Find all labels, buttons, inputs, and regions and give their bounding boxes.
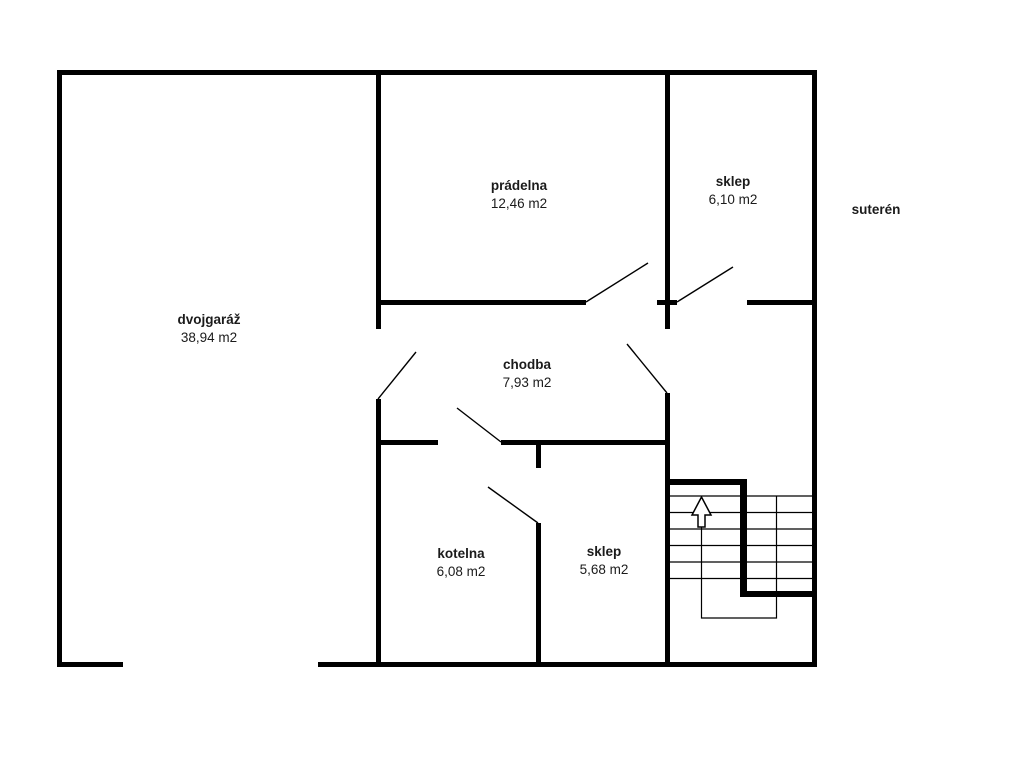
stairs-up-arrow-icon bbox=[692, 497, 711, 527]
wall bbox=[57, 70, 817, 75]
room-area: 6,10 m2 bbox=[709, 191, 758, 209]
room-area: 12,46 m2 bbox=[491, 195, 547, 213]
wall bbox=[376, 399, 381, 667]
room-name: dvojgaráž bbox=[177, 311, 240, 329]
room-area: 6,08 m2 bbox=[437, 563, 486, 581]
wall bbox=[536, 523, 541, 667]
room-area: 7,93 m2 bbox=[503, 374, 552, 392]
wall bbox=[318, 662, 817, 667]
room-label-kotelna: kotelna 6,08 m2 bbox=[437, 545, 486, 581]
wall bbox=[376, 70, 381, 329]
room-area: 5,68 m2 bbox=[580, 561, 629, 579]
floor-plan: dvojgaráž 38,94 m2 prádelna 12,46 m2 skl… bbox=[0, 0, 1024, 768]
room-name: prádelna bbox=[491, 177, 547, 195]
wall bbox=[670, 479, 744, 485]
door-swing bbox=[586, 263, 648, 302]
wall bbox=[501, 440, 670, 445]
room-label-dvojgaraz: dvojgaráž 38,94 m2 bbox=[177, 311, 240, 347]
room-label-sklep-bottom: sklep 5,68 m2 bbox=[580, 543, 629, 579]
room-name: kotelna bbox=[437, 545, 486, 563]
wall bbox=[747, 300, 812, 305]
door-swing bbox=[488, 487, 538, 523]
wall bbox=[665, 70, 670, 329]
stair-walk-line bbox=[702, 496, 777, 618]
room-label-sklep-top: sklep 6,10 m2 bbox=[709, 173, 758, 209]
door-swing bbox=[457, 408, 501, 442]
floor-level-label: suterén bbox=[852, 202, 901, 217]
door-swing bbox=[378, 352, 416, 399]
wall bbox=[740, 479, 747, 597]
room-label-pradelna: prádelna 12,46 m2 bbox=[491, 177, 547, 213]
room-name: sklep bbox=[580, 543, 629, 561]
room-name: sklep bbox=[709, 173, 758, 191]
door-swing bbox=[627, 344, 667, 393]
room-area: 38,94 m2 bbox=[177, 329, 240, 347]
door-swing bbox=[677, 267, 733, 302]
wall bbox=[378, 440, 438, 445]
wall bbox=[657, 300, 677, 305]
wall bbox=[57, 662, 123, 667]
wall bbox=[665, 393, 670, 667]
wall bbox=[536, 440, 541, 468]
room-label-chodba: chodba 7,93 m2 bbox=[503, 356, 552, 392]
wall bbox=[378, 300, 586, 305]
wall bbox=[812, 70, 817, 667]
wall bbox=[57, 70, 62, 667]
room-name: chodba bbox=[503, 356, 552, 374]
